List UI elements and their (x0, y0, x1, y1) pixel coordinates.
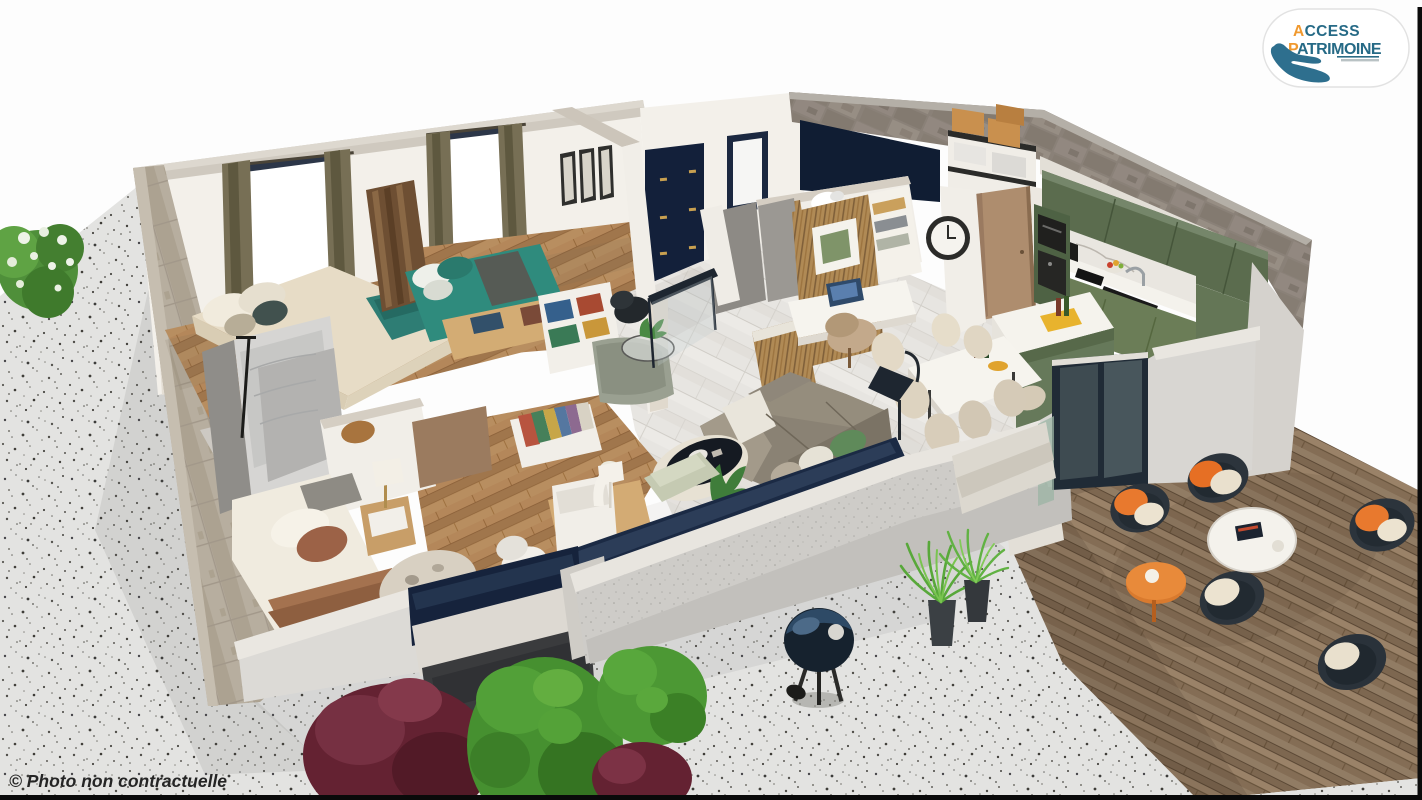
svg-text:ACCESS: ACCESS (1293, 23, 1360, 40)
svg-text:© Photo non contractuelle: © Photo non contractuelle (9, 771, 227, 791)
